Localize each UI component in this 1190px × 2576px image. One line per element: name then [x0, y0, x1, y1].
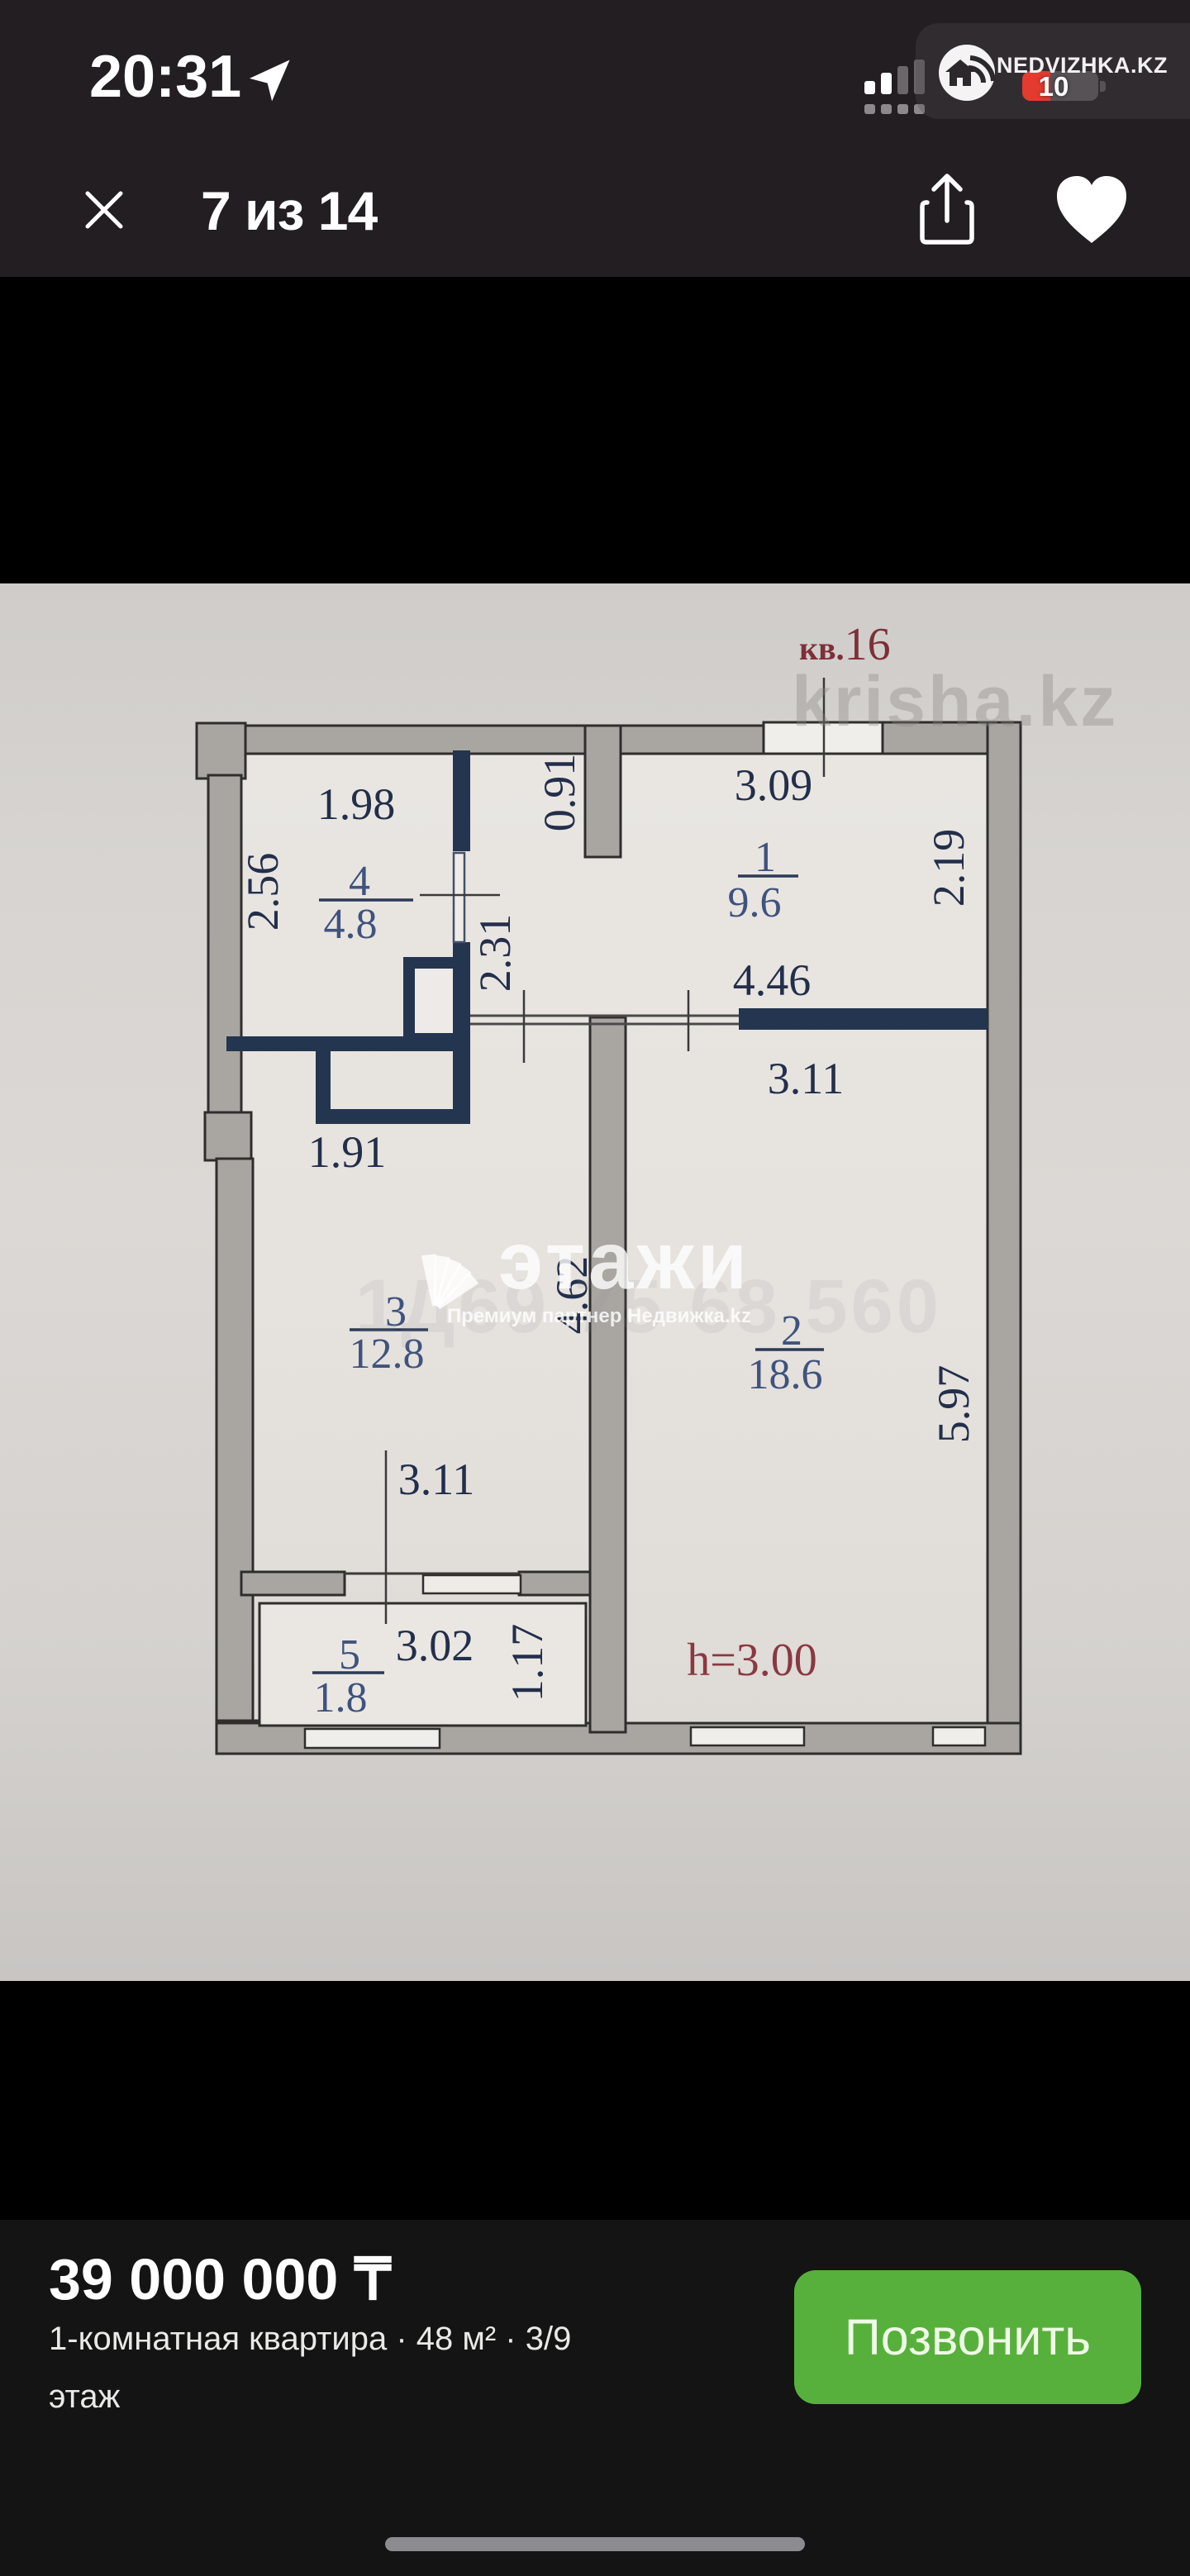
svg-text:3.11: 3.11 [398, 1455, 475, 1504]
svg-text:h=3.00: h=3.00 [687, 1635, 817, 1686]
svg-text:4.8: 4.8 [324, 901, 378, 948]
svg-text:2.19: 2.19 [924, 829, 973, 907]
svg-text:3.02: 3.02 [396, 1621, 474, 1670]
svg-text:5: 5 [339, 1631, 360, 1678]
svg-text:2.56: 2.56 [238, 853, 288, 931]
svg-text:5.97: 5.97 [929, 1365, 978, 1444]
svg-text:9.6: 9.6 [728, 879, 782, 926]
svg-text:1.8: 1.8 [314, 1674, 368, 1721]
svg-text:4: 4 [349, 858, 370, 905]
svg-text:1.98: 1.98 [317, 779, 396, 829]
svg-text:4.46: 4.46 [733, 955, 812, 1005]
svg-text:18.6: 18.6 [748, 1351, 823, 1398]
svg-text:0.91: 0.91 [535, 754, 584, 832]
svg-text:3.11: 3.11 [768, 1054, 845, 1103]
svg-text:2.31: 2.31 [470, 914, 520, 993]
svg-text:3.09: 3.09 [735, 760, 813, 810]
svg-text:1.17: 1.17 [502, 1624, 552, 1702]
svg-text:1: 1 [754, 834, 776, 881]
svg-text:1.91: 1.91 [308, 1127, 387, 1177]
